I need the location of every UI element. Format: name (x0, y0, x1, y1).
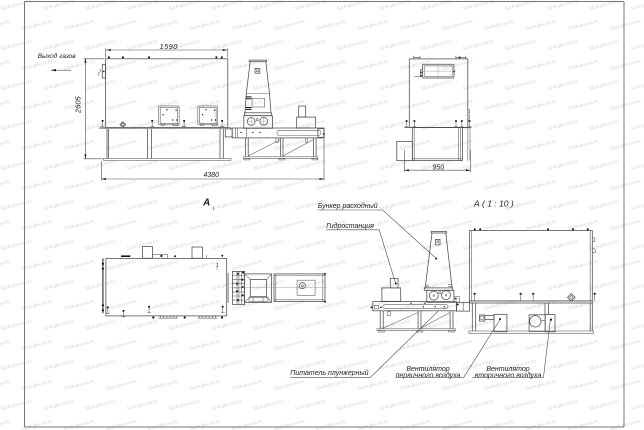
svg-text:2605: 2605 (74, 95, 83, 114)
svg-text:первичного воздуха: первичного воздуха (396, 372, 461, 380)
svg-text:Питатель плунжерный: Питатель плунжерный (290, 369, 368, 377)
svg-text:Гидростанция: Гидростанция (326, 222, 374, 230)
svg-text:А ( 1 : 10 ): А ( 1 : 10 ) (473, 199, 514, 209)
svg-text:А: А (202, 198, 210, 209)
svg-text:4380: 4380 (204, 172, 220, 179)
svg-text:вторичного воздуха: вторичного воздуха (475, 372, 542, 380)
svg-text:1590: 1590 (160, 42, 179, 51)
svg-text:Выход газов: Выход газов (38, 52, 76, 60)
svg-text:950: 950 (433, 165, 445, 172)
svg-text:Бункер расходный: Бункер расходный (318, 202, 378, 210)
